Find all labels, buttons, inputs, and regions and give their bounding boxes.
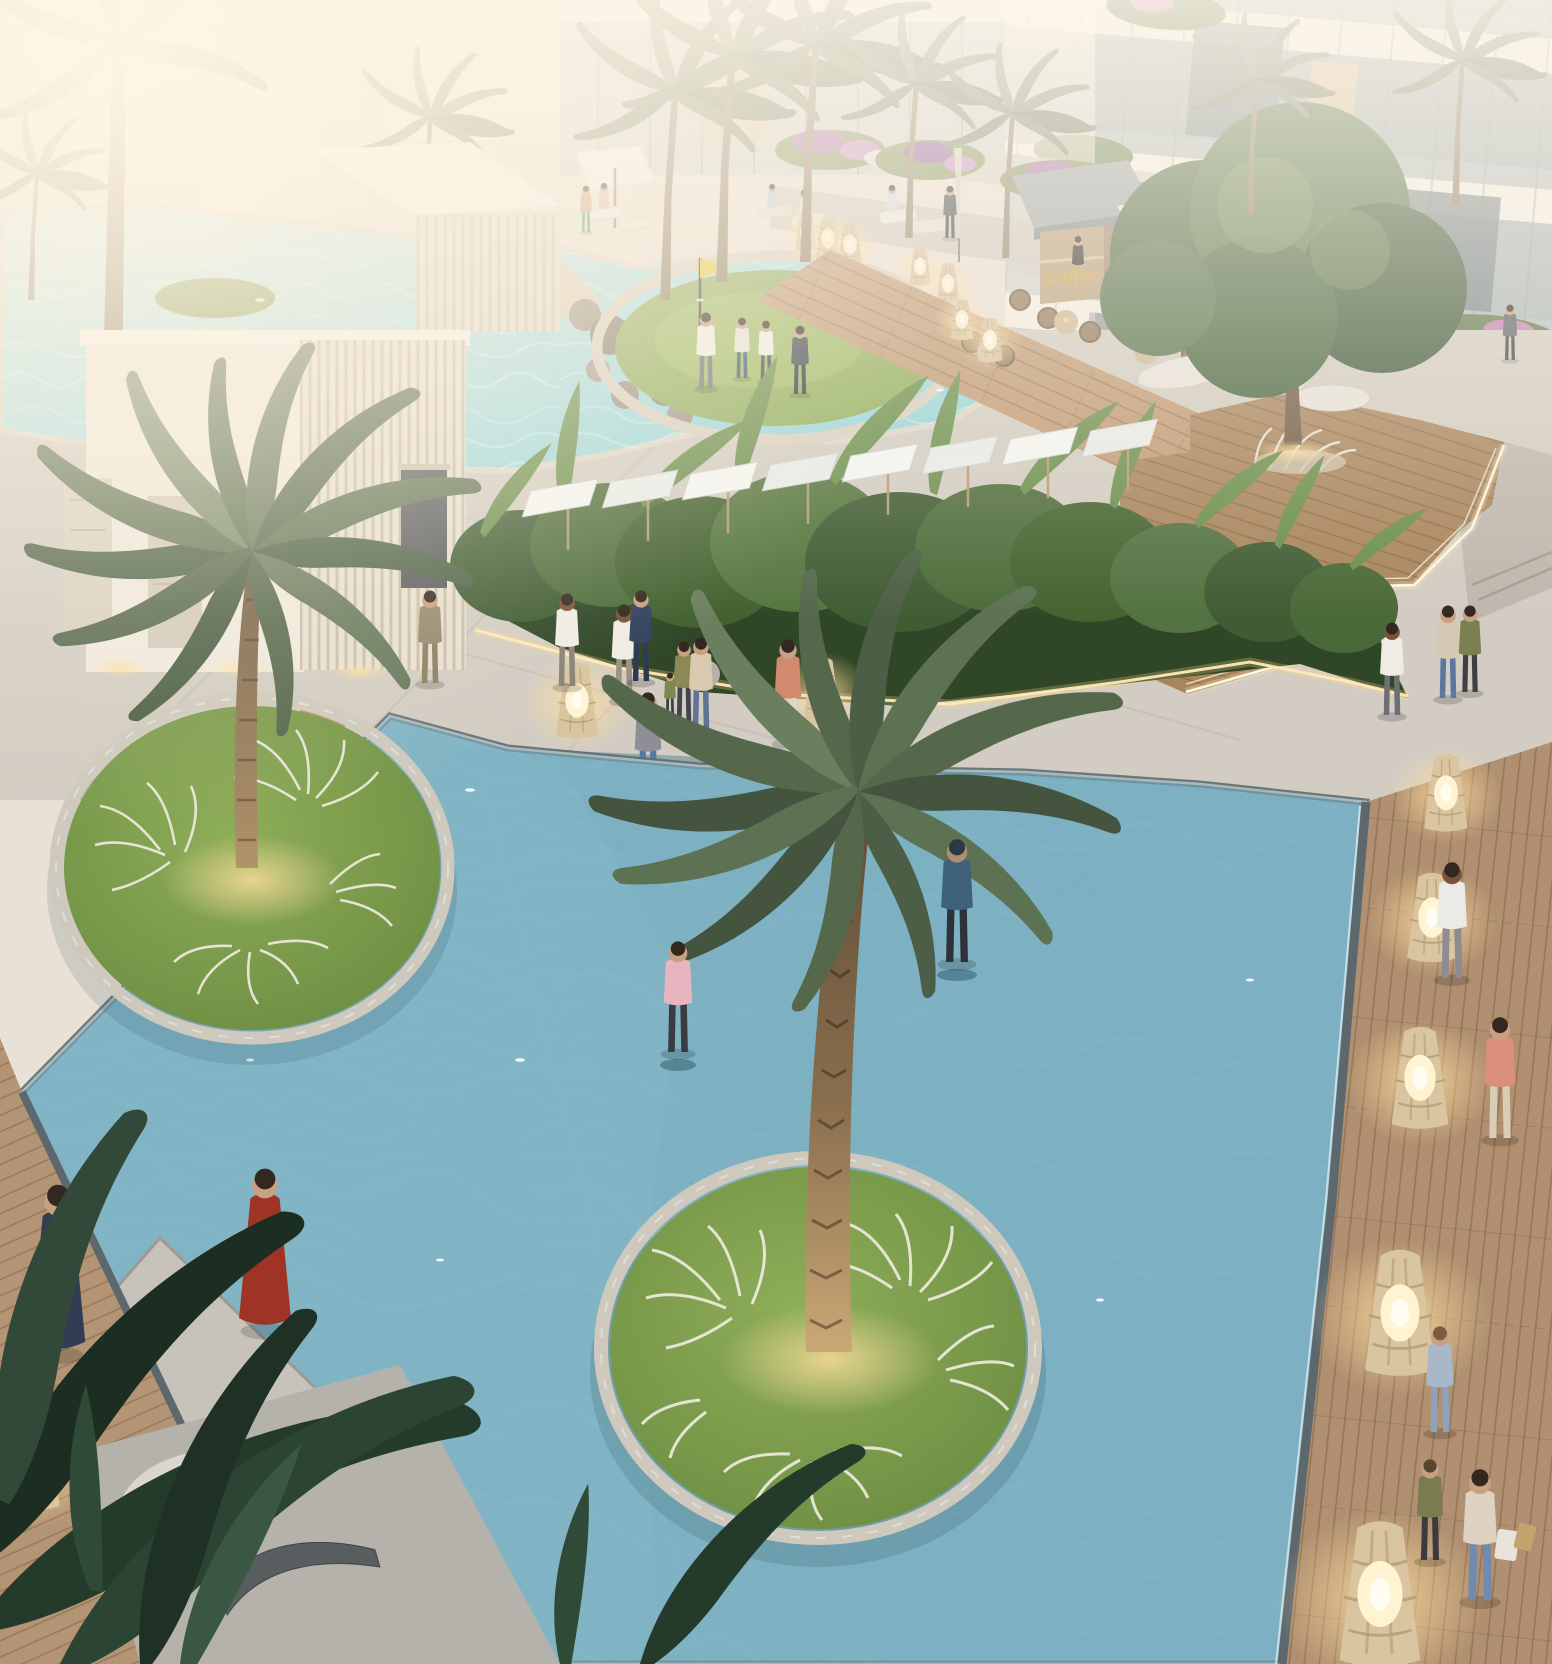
sun-glare — [0, 0, 980, 860]
render-canvas: Coffee — [0, 0, 1552, 1664]
